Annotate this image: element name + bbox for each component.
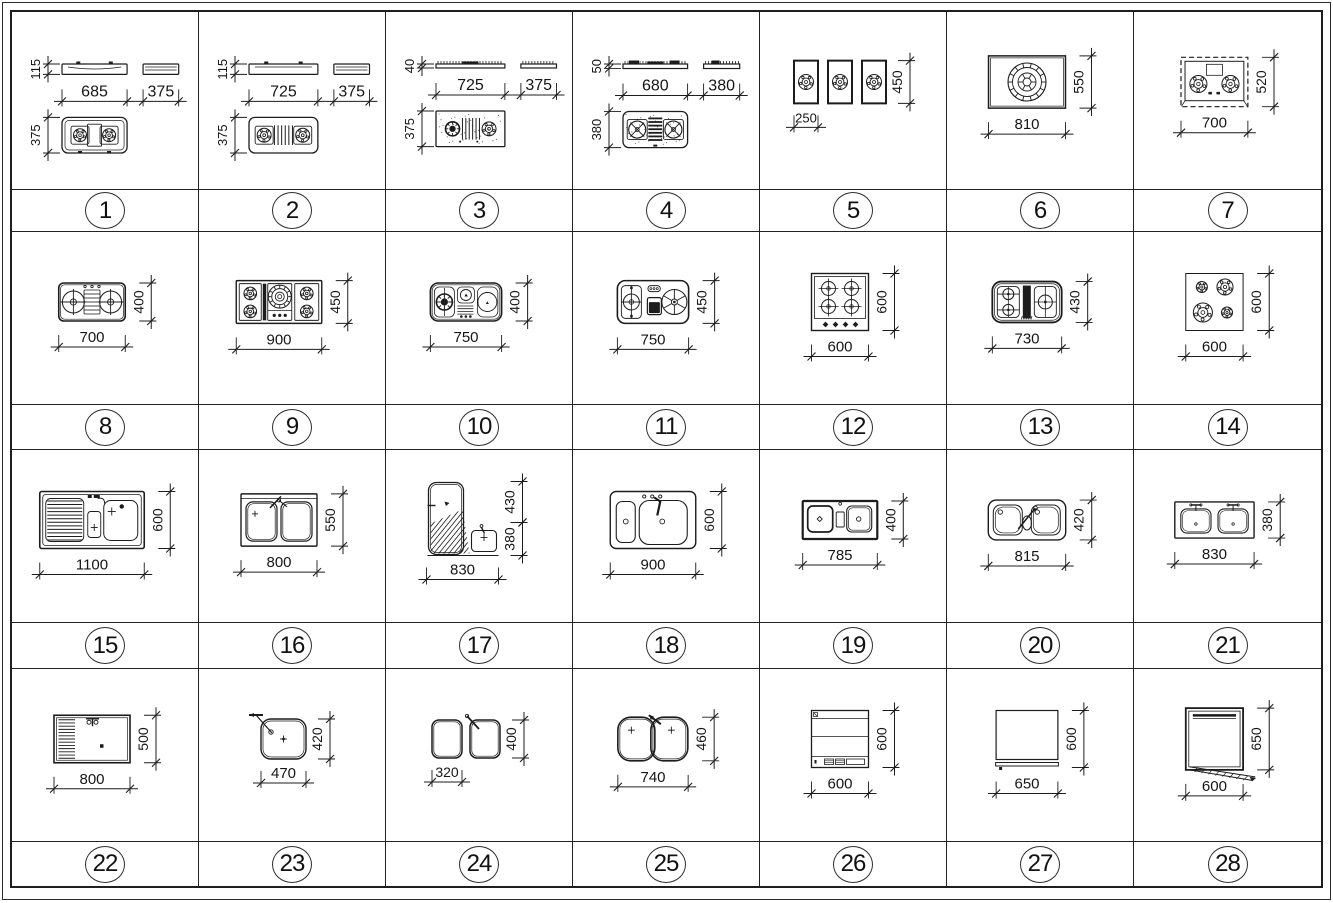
number-cell-11: 11 [573,405,760,450]
figure-cell-23: 470420 [199,669,386,842]
dim-label: 400 [503,727,519,751]
number-cell-3: 3 [386,190,573,232]
dim-label: 830 [450,562,475,579]
figure-two_sep: 320400 [424,712,529,787]
dim-label: 430 [502,490,518,514]
dim-label: 600 [1202,778,1227,795]
dim-label: 725 [457,77,484,94]
figure-two_black: 730430 [984,274,1092,354]
figure-cell-28: 600650 [1134,669,1321,842]
dim-label: 550 [322,508,338,532]
number-cell-18: 18 [573,623,760,669]
figure-cell-9: 900450 [199,232,386,405]
dim-label: 685 [81,83,108,100]
figure-wok: 810550 [981,48,1097,139]
number-cell-23: 23 [199,842,386,886]
item-number-badge: 18 [646,627,686,664]
figure-cell-4: 50680380380 [573,12,760,190]
number-cell-22: 22 [12,842,199,886]
figure-strips: 250450 [786,53,915,133]
figure-svg-19: 785400 [760,450,946,622]
number-cell-16: 16 [199,623,386,669]
dim-label: 1100 [76,557,108,574]
dim-label: 800 [79,771,104,788]
figure-mixed: 750400 [422,275,532,352]
dim-label: 320 [435,764,459,780]
figure-cell-27: 650600 [947,669,1134,842]
item-number-badge: 26 [833,846,873,883]
dim-label: 740 [640,769,665,786]
figure-svg-26: 600600 [760,669,946,841]
dim-label: 375 [148,83,175,100]
number-cell-14: 14 [1134,405,1321,450]
cad-sheet-page: { "sheet": {"rows": 4, "cols": 7, "item_… [0,0,1333,903]
figure-sink21: 830380 [1167,494,1285,569]
sheet-grid: 1156853753751157253753754072537537550680… [10,10,1323,888]
dim-label: 40 [402,59,417,73]
item-number-badge: 1 [85,192,125,229]
item-number-badge: 11 [646,409,686,446]
figure-hob_side: 50680380380 [589,56,748,156]
dim-label: 725 [270,83,297,100]
number-cell-28: 28 [1134,842,1321,886]
dim-label: 380 [589,119,604,141]
item-number-badge: 10 [459,409,499,446]
figure-cell-1: 115685375375 [12,12,199,190]
dim-label: 115 [215,59,230,80]
number-cell-27: 27 [947,842,1134,886]
item-number-badge: 5 [833,192,873,229]
dim-label: 900 [266,331,291,348]
item-number-badge: 27 [1020,846,1060,883]
dim-label: 600 [701,508,717,532]
figure-svg-28: 600650 [1134,669,1321,841]
dim-label: 550 [1070,70,1086,94]
figure-svg-25: 740460 [573,669,759,841]
dim-label: 600 [1202,339,1227,356]
dim-label: 600 [1063,727,1079,751]
dim-label: 250 [795,110,817,125]
figure-cell-5: 250450 [760,12,947,190]
dim-label: 460 [693,727,709,751]
figure-svg-27: 650600 [947,669,1133,841]
figure-dw28: 600650 [1178,700,1275,801]
figure-cell-8: 700400 [12,232,199,405]
dim-label: 375 [402,118,417,140]
dim-label: 400 [130,290,146,314]
figure-svg-6: 810550 [947,12,1133,189]
number-cell-13: 13 [947,405,1134,450]
figure-cell-11: 750450 [573,232,760,405]
number-cell-24: 24 [386,842,573,886]
item-number-badge: 16 [272,627,312,664]
dim-label: 375 [525,77,552,94]
item-number-badge: 3 [459,192,499,229]
figure-sink_corner: 830430380 [401,474,528,585]
dim-label: 830 [1202,546,1227,563]
figure-four_cross: 600600 [804,266,900,362]
figure-dw26: 600600 [804,703,900,799]
dim-label: 680 [642,78,669,95]
figure-cell-10: 750400 [386,232,573,405]
dim-label: 380 [1259,508,1275,532]
dim-label: 375 [215,124,230,146]
figure-sink22: 800500 [46,707,161,794]
number-cell-1: 1 [12,190,199,232]
item-number-badge: 2 [272,192,312,229]
item-number-badge: 8 [85,409,125,446]
dim-label: 730 [1014,330,1039,347]
figure-svg-15: 1100600 [12,450,198,622]
figure-sink18: 900600 [602,484,727,580]
figure-svg-21: 830380 [1134,450,1321,622]
dim-label: 600 [827,776,852,793]
dim-label: 500 [135,727,151,751]
figure-cell-15: 1100600 [12,450,199,623]
dim-label: 650 [1248,727,1264,751]
number-cell-19: 19 [760,623,947,669]
number-cell-10: 10 [386,405,573,450]
figure-two_oven: 750450 [609,273,719,355]
dim-label: 520 [1253,70,1269,94]
number-cell-6: 6 [947,190,1134,232]
dim-label: 430 [1067,290,1083,314]
figure-cell-6: 810550 [947,12,1134,190]
dim-label: 450 [694,290,710,314]
dim-label: 470 [271,765,296,782]
figure-cell-25: 740460 [573,669,760,842]
figure-cell-19: 785400 [760,450,947,623]
figure-cell-18: 900600 [573,450,760,623]
dim-label: 815 [1014,548,1039,565]
figure-svg-10: 750400 [386,232,572,404]
number-cell-21: 21 [1134,623,1321,669]
figure-hob_side: 115685375375 [28,56,187,161]
number-cell-7: 7 [1134,190,1321,232]
figure-cell-24: 320400 [386,669,573,842]
item-number-badge: 12 [833,409,873,446]
item-number-badge: 6 [1020,192,1060,229]
figure-svg-16: 800550 [199,450,385,622]
dim-label: 650 [1014,776,1039,793]
figure-svg-11: 750450 [573,232,759,404]
dim-label: 600 [827,339,852,356]
figure-svg-14: 600600 [1134,232,1321,404]
number-cell-26: 26 [760,842,947,886]
figure-cell-16: 800550 [199,450,386,623]
item-number-badge: 15 [85,627,125,664]
dim-label: 750 [453,329,478,346]
figure-svg-13: 730430 [947,232,1133,404]
figure-svg-8: 700400 [12,232,198,404]
figure-five: 900450 [228,273,353,355]
figure-svg-7: 700520 [1134,12,1321,189]
dim-label: 380 [708,78,735,95]
number-cell-2: 2 [199,190,386,232]
figure-svg-1: 115685375375 [12,12,198,189]
figure-cell-7: 700520 [1134,12,1321,190]
dim-label: 600 [149,508,165,532]
figure-svg-24: 320400 [386,669,572,841]
dim-label: 450 [889,70,905,94]
item-number-badge: 19 [833,627,873,664]
figure-svg-4: 50680380380 [573,12,759,189]
dim-label: 400 [507,290,523,314]
cad-sheet: 1156853753751157253753754072537537550680… [0,0,1333,903]
dim-label: 700 [1202,115,1227,132]
figure-svg-17: 830430380 [386,450,572,622]
item-number-badge: 9 [272,409,312,446]
item-number-badge: 7 [1208,192,1248,229]
figure-svg-22: 800500 [12,669,198,841]
item-number-badge: 25 [646,846,686,883]
dim-label: 700 [79,329,104,346]
number-cell-5: 5 [760,190,947,232]
number-cell-12: 12 [760,405,947,450]
number-cell-17: 17 [386,623,573,669]
number-cell-25: 25 [573,842,760,886]
figure-svg-9: 900450 [199,232,385,404]
figure-cell-12: 600600 [760,232,947,405]
item-number-badge: 23 [272,846,312,883]
dim-label: 600 [874,727,890,751]
figure-svg-3: 40725375375 [386,12,572,189]
dim-label: 800 [266,554,291,571]
number-cell-15: 15 [12,623,199,669]
number-cell-8: 8 [12,405,199,450]
figure-sink16: 800550 [233,486,348,577]
figure-cell-17: 830430380 [386,450,573,623]
figure-hob_side: 40725375375 [402,56,565,155]
figure-cell-2: 115725375375 [199,12,386,190]
figure-grill2: 700400 [51,275,157,352]
figure-svg-12: 600600 [760,232,946,404]
dim-label: 750 [640,331,665,348]
figure-sink19: 785400 [795,493,909,570]
item-number-badge: 28 [1208,846,1248,883]
dim-label: 375 [338,83,365,100]
figure-cell-14: 600600 [1134,232,1321,405]
figure-sink25: 740460 [610,709,719,792]
dim-label: 450 [327,290,343,314]
figure-hob_side: 115725375375 [215,56,378,161]
dim-label: 420 [309,727,325,751]
dim-label: 400 [882,508,898,532]
dim-label: 600 [1248,290,1264,314]
figure-sink20: 815420 [980,492,1096,571]
dim-label: 50 [589,59,604,73]
figure-cell-21: 830380 [1134,450,1321,623]
number-cell-4: 4 [573,190,760,232]
figure-cell-3: 40725375375 [386,12,573,190]
item-number-badge: 14 [1208,409,1248,446]
figure-four_round: 600600 [1178,266,1275,362]
figure-cell-22: 800500 [12,669,199,842]
figure-sink23: 470420 [249,711,335,788]
dim-label: 900 [640,557,665,574]
dim-label: 420 [1071,508,1087,532]
number-cell-9: 9 [199,405,386,450]
item-number-badge: 17 [459,627,499,664]
item-number-badge: 4 [646,192,686,229]
item-number-badge: 22 [85,846,125,883]
dim-label: 375 [28,124,43,146]
item-number-badge: 20 [1020,627,1060,664]
figure-dashed2: 700520 [1173,49,1279,137]
figure-cell-13: 730430 [947,232,1134,405]
dim-label: 115 [28,59,43,80]
figure-svg-18: 900600 [573,450,759,622]
item-number-badge: 21 [1208,627,1248,664]
dim-label: 810 [1014,116,1039,133]
number-cell-20: 20 [947,623,1134,669]
dim-label: 380 [502,527,518,551]
item-number-badge: 13 [1020,409,1060,446]
item-number-badge: 24 [459,846,499,883]
figure-svg-23: 470420 [199,669,385,841]
figure-svg-5: 250450 [760,12,946,189]
dim-label: 600 [874,290,890,314]
figure-svg-2: 115725375375 [199,12,385,189]
figure-svg-20: 815420 [947,450,1133,622]
figure-cell-26: 600600 [760,669,947,842]
dim-label: 785 [827,547,852,564]
figure-sink_drain: 1100600 [32,484,176,580]
figure-dw27: 650600 [988,703,1089,799]
figure-cell-20: 815420 [947,450,1134,623]
